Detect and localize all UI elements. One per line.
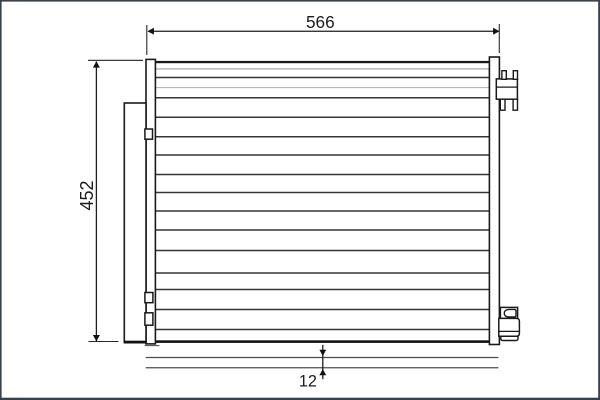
- svg-text:566: 566: [306, 12, 335, 32]
- svg-text:452: 452: [77, 180, 97, 210]
- svg-text:12: 12: [299, 372, 317, 390]
